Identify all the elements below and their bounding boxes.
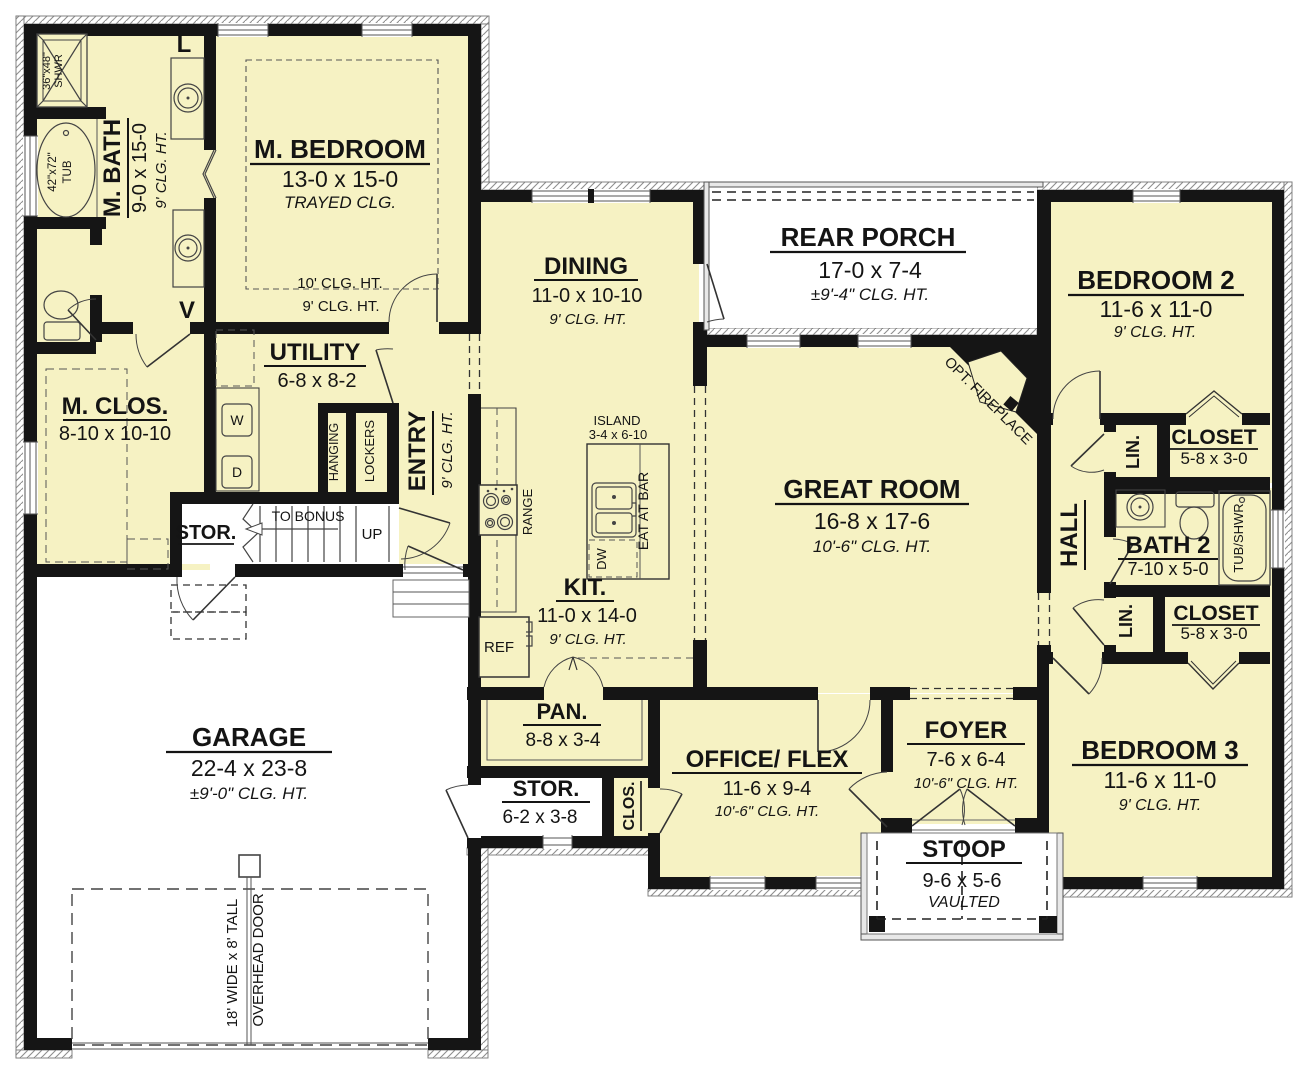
svg-text:STOOP: STOOP [922,836,1006,863]
svg-text:STOR.: STOR. [176,522,237,544]
svg-text:10'-6" CLG. HT.: 10'-6" CLG. HT. [715,803,819,820]
svg-text:36"x48": 36"x48" [41,52,53,90]
svg-text:BATH 2: BATH 2 [1126,532,1211,559]
svg-text:11-0 x 10-10: 11-0 x 10-10 [532,285,643,307]
svg-text:11-6 x 9-4: 11-6 x 9-4 [723,778,812,800]
svg-text:GARAGE: GARAGE [192,722,306,752]
svg-text:CLOSET: CLOSET [1171,426,1256,449]
svg-text:W: W [230,412,244,428]
svg-text:ENTRY: ENTRY [404,411,431,491]
svg-text:7-10 x 5-0: 7-10 x 5-0 [1127,559,1208,579]
svg-text:8-10 x 10-10: 8-10 x 10-10 [59,423,171,445]
svg-text:9' CLG. HT.: 9' CLG. HT. [549,311,626,328]
svg-text:TUB: TUB [62,160,74,183]
svg-text:DINING: DINING [544,253,628,280]
svg-text:9-0 x 15-0: 9-0 x 15-0 [129,123,151,213]
svg-text:HALL: HALL [1056,503,1083,567]
svg-text:11-6 x 11-0: 11-6 x 11-0 [1100,296,1213,322]
svg-text:PAN.: PAN. [537,699,588,724]
svg-text:9' CLG. HT.: 9' CLG. HT. [1114,324,1197,341]
svg-text:REF: REF [484,639,514,656]
svg-text:BEDROOM 3: BEDROOM 3 [1081,735,1238,765]
svg-text:11-6 x 11-0: 11-6 x 11-0 [1104,767,1217,793]
svg-text:10' CLG. HT.: 10' CLG. HT. [297,275,382,292]
svg-text:L: L [177,31,192,58]
svg-text:TO BONUS: TO BONUS [272,508,345,524]
svg-text:9' CLG. HT.: 9' CLG. HT. [302,298,379,315]
svg-text:±9'-0" CLG. HT.: ±9'-0" CLG. HT. [190,784,308,803]
svg-text:10'-6" CLG. HT.: 10'-6" CLG. HT. [813,537,931,556]
svg-text:REAR PORCH: REAR PORCH [781,222,956,252]
svg-text:LIN.: LIN. [1123,435,1143,469]
svg-text:D: D [232,464,242,480]
svg-text:6-2 x 3-8: 6-2 x 3-8 [503,807,578,828]
svg-text:RANGE: RANGE [520,489,535,536]
svg-text:5-8 x 3-0: 5-8 x 3-0 [1180,449,1247,468]
svg-text:9' CLG. HT.: 9' CLG. HT. [153,131,170,208]
svg-text:5-8 x 3-0: 5-8 x 3-0 [1180,624,1247,643]
svg-text:3-4 x 6-10: 3-4 x 6-10 [589,427,648,442]
svg-text:±9'-4" CLG. HT.: ±9'-4" CLG. HT. [811,285,929,304]
svg-text:ISLAND: ISLAND [594,413,641,428]
svg-text:GREAT ROOM: GREAT ROOM [783,474,960,504]
svg-text:16-8 x 17-6: 16-8 x 17-6 [814,508,930,534]
svg-text:FOYER: FOYER [925,717,1008,744]
svg-text:LOCKERS: LOCKERS [362,420,377,482]
svg-text:VAULTED: VAULTED [928,894,1000,911]
svg-text:UP: UP [362,526,383,543]
svg-text:SHWR: SHWR [53,54,65,88]
svg-text:10'-6" CLG. HT.: 10'-6" CLG. HT. [914,775,1018,792]
svg-text:9' CLG. HT.: 9' CLG. HT. [549,631,626,648]
svg-text:8-8 x 3-4: 8-8 x 3-4 [526,730,601,751]
svg-text:UTILITY: UTILITY [270,339,361,366]
svg-text:EAT AT BAR: EAT AT BAR [635,472,651,550]
svg-text:M. CLOS.: M. CLOS. [62,393,169,420]
svg-text:CLOSET: CLOSET [1173,602,1258,625]
svg-text:9' CLG. HT.: 9' CLG. HT. [1119,797,1202,814]
svg-text:42"x72": 42"x72" [47,152,59,192]
svg-text:KIT.: KIT. [564,574,607,601]
svg-text:M. BATH: M. BATH [99,119,126,217]
svg-text:11-0 x 14-0: 11-0 x 14-0 [537,605,637,627]
svg-text:OVERHEAD DOOR: OVERHEAD DOOR [250,893,267,1027]
svg-text:17-0 x 7-4: 17-0 x 7-4 [818,257,922,283]
svg-text:13-0 x 15-0: 13-0 x 15-0 [282,166,398,192]
svg-text:STOR.: STOR. [513,776,580,801]
svg-text:9' CLG. HT.: 9' CLG. HT. [439,411,456,488]
svg-text:6-8 x 8-2: 6-8 x 8-2 [278,370,357,392]
svg-text:7-6 x 6-4: 7-6 x 6-4 [927,749,1006,771]
svg-text:9-6 x 5-6: 9-6 x 5-6 [923,870,1002,892]
svg-text:OFFICE/ FLEX: OFFICE/ FLEX [686,746,849,773]
svg-text:HANGING: HANGING [327,423,341,481]
svg-text:DW: DW [594,547,609,569]
svg-text:BEDROOM 2: BEDROOM 2 [1077,265,1234,295]
svg-text:22-4 x 23-8: 22-4 x 23-8 [191,755,307,781]
svg-text:M. BEDROOM: M. BEDROOM [254,134,426,164]
svg-text:18' WIDE x 8' TALL: 18' WIDE x 8' TALL [224,899,241,1028]
svg-text:LIN.: LIN. [1116,604,1136,638]
svg-text:TUB/SHWR: TUB/SHWR [1231,503,1246,572]
svg-text:TRAYED CLG.: TRAYED CLG. [284,193,396,212]
svg-text:V: V [179,297,195,324]
svg-text:CLOS.: CLOS. [621,782,638,831]
